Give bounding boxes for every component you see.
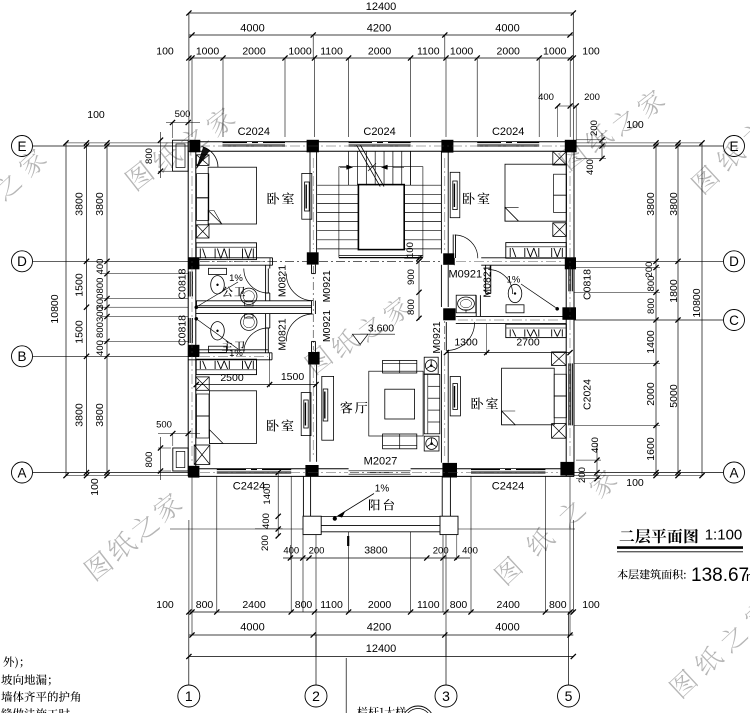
svg-text:800: 800 <box>646 298 657 314</box>
svg-text:4000: 4000 <box>240 622 264 634</box>
svg-text:400: 400 <box>585 159 596 175</box>
svg-text:800: 800 <box>95 322 106 338</box>
svg-text:1000: 1000 <box>196 46 220 58</box>
svg-text:C: C <box>729 313 739 328</box>
svg-text:1100: 1100 <box>417 599 440 611</box>
svg-text:2400: 2400 <box>242 599 266 611</box>
svg-text:800: 800 <box>144 452 155 468</box>
svg-text:1%: 1% <box>507 275 521 286</box>
svg-text:1:100: 1:100 <box>705 527 743 544</box>
svg-text:C2024: C2024 <box>492 126 524 138</box>
svg-text:1100: 1100 <box>320 599 343 611</box>
svg-text:100: 100 <box>582 599 600 611</box>
svg-text:1600: 1600 <box>645 437 657 461</box>
svg-text:C2024: C2024 <box>582 379 594 410</box>
svg-text:200: 200 <box>433 546 449 557</box>
svg-text:1100: 1100 <box>417 46 440 58</box>
svg-text:1500: 1500 <box>281 371 305 383</box>
svg-text:1100: 1100 <box>320 46 343 58</box>
svg-text:C0818: C0818 <box>582 269 594 300</box>
svg-text:400: 400 <box>462 546 478 557</box>
svg-text:800: 800 <box>295 599 313 611</box>
svg-text:10800: 10800 <box>691 288 703 317</box>
svg-text:100: 100 <box>156 46 174 58</box>
svg-text:400: 400 <box>95 340 106 356</box>
svg-text:2400: 2400 <box>497 599 521 611</box>
svg-text:200: 200 <box>577 467 588 483</box>
svg-text:3800: 3800 <box>645 192 657 216</box>
svg-text:1800: 1800 <box>668 279 680 303</box>
svg-text:2000: 2000 <box>368 599 392 611</box>
svg-text:A: A <box>729 465 738 480</box>
svg-text:5: 5 <box>565 688 573 704</box>
svg-text:M0821: M0821 <box>277 265 289 297</box>
svg-text:M0821: M0821 <box>277 318 289 350</box>
svg-text:1000: 1000 <box>288 46 312 58</box>
svg-text:12400: 12400 <box>366 1 397 13</box>
svg-text:138.67: 138.67 <box>691 565 749 586</box>
svg-text:M0921: M0921 <box>448 269 482 281</box>
svg-text:500: 500 <box>175 109 191 120</box>
svg-text:3800: 3800 <box>74 192 86 216</box>
svg-text:400: 400 <box>95 259 106 275</box>
svg-text:A: A <box>17 465 26 480</box>
svg-text:900: 900 <box>406 269 417 285</box>
svg-text:B: B <box>17 349 26 364</box>
svg-text:400: 400 <box>261 513 272 529</box>
svg-text:3800: 3800 <box>94 403 106 427</box>
svg-text:1000: 1000 <box>450 46 474 58</box>
svg-text:300: 300 <box>95 306 106 322</box>
svg-text:1%: 1% <box>375 484 390 495</box>
svg-text:M2027: M2027 <box>364 456 398 468</box>
svg-text:800: 800 <box>646 276 657 292</box>
svg-text:10800: 10800 <box>49 294 61 323</box>
svg-text:4200: 4200 <box>367 23 391 35</box>
svg-text:1000: 1000 <box>543 46 567 58</box>
svg-text:C0818: C0818 <box>177 268 189 299</box>
svg-text:2700: 2700 <box>516 337 540 349</box>
svg-text:C2424: C2424 <box>233 481 265 493</box>
svg-text:M0921: M0921 <box>321 310 333 342</box>
svg-text:4000: 4000 <box>240 23 264 35</box>
svg-text:400: 400 <box>538 92 554 103</box>
svg-text:M0921: M0921 <box>431 321 443 353</box>
svg-text:200: 200 <box>589 120 600 136</box>
svg-text:D: D <box>729 254 739 269</box>
svg-text:4200: 4200 <box>367 622 391 634</box>
svg-text:3: 3 <box>442 688 450 704</box>
svg-text:3800: 3800 <box>74 403 86 427</box>
svg-text:3800: 3800 <box>364 545 388 557</box>
svg-text:C2024: C2024 <box>238 126 270 138</box>
svg-text:1%: 1% <box>229 348 243 359</box>
svg-text:1: 1 <box>185 688 193 704</box>
svg-text:1400: 1400 <box>645 330 657 354</box>
svg-text:100: 100 <box>156 599 174 611</box>
svg-text:800: 800 <box>549 599 567 611</box>
svg-text:400: 400 <box>590 437 601 453</box>
svg-text:4000: 4000 <box>495 23 519 35</box>
svg-text:2000: 2000 <box>242 46 266 58</box>
svg-text:200: 200 <box>644 262 655 278</box>
svg-text:800: 800 <box>144 148 155 164</box>
svg-text:2000: 2000 <box>497 46 521 58</box>
svg-text:800: 800 <box>450 599 468 611</box>
svg-text:E: E <box>17 139 26 154</box>
svg-text:4000: 4000 <box>495 622 519 634</box>
svg-text:M0821: M0821 <box>482 265 494 297</box>
svg-text:E: E <box>729 139 738 154</box>
svg-text:1%: 1% <box>229 273 243 284</box>
svg-text:C2024: C2024 <box>363 126 395 138</box>
svg-text:C0818: C0818 <box>177 315 189 346</box>
svg-text:800: 800 <box>95 278 106 294</box>
svg-text:100: 100 <box>626 119 644 131</box>
svg-text:C2424: C2424 <box>492 481 524 493</box>
svg-text:800: 800 <box>406 299 417 315</box>
svg-text:D: D <box>17 254 27 269</box>
svg-text:800: 800 <box>196 599 214 611</box>
svg-text:2000: 2000 <box>368 46 392 58</box>
svg-text:12400: 12400 <box>366 643 397 655</box>
svg-text:200: 200 <box>309 546 325 557</box>
svg-text:100: 100 <box>405 242 416 258</box>
svg-text:3800: 3800 <box>668 192 680 216</box>
svg-text:100: 100 <box>582 46 600 58</box>
svg-text:100: 100 <box>626 477 644 489</box>
svg-text:M0921: M0921 <box>321 270 333 302</box>
svg-text:100: 100 <box>87 109 105 121</box>
svg-text:3.600: 3.600 <box>368 323 394 335</box>
svg-text:500: 500 <box>156 420 172 431</box>
svg-text:1500: 1500 <box>74 273 86 297</box>
svg-text:200: 200 <box>584 92 600 103</box>
svg-text:1300: 1300 <box>454 337 478 349</box>
svg-text:3800: 3800 <box>94 192 106 216</box>
svg-text:2000: 2000 <box>645 382 657 406</box>
svg-text:5000: 5000 <box>668 384 680 408</box>
svg-text:200: 200 <box>260 535 271 551</box>
svg-text:2: 2 <box>312 688 320 704</box>
svg-text:m: m <box>746 569 750 584</box>
svg-text:100: 100 <box>89 478 101 496</box>
svg-text:400: 400 <box>283 546 299 557</box>
svg-text:1500: 1500 <box>74 320 86 344</box>
svg-text:2500: 2500 <box>220 372 244 384</box>
